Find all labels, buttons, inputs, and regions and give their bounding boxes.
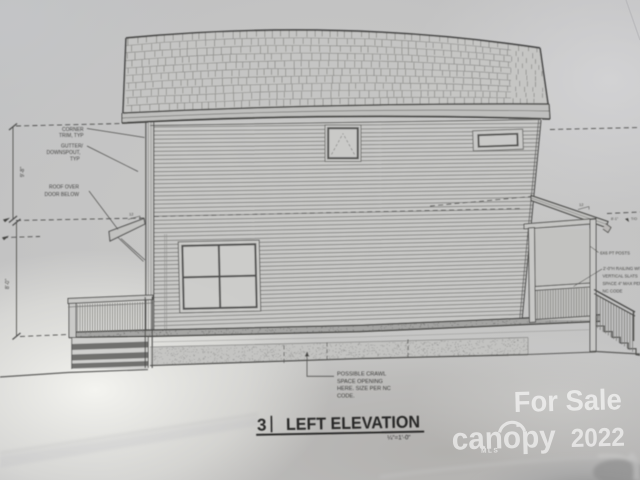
svg-text:¼"=1'-0": ¼"=1'-0" — [387, 434, 410, 441]
svg-text:8'-1": 8'-1" — [611, 217, 619, 221]
svg-text:MLS: MLS — [481, 447, 499, 454]
svg-text:TYP: TYP — [70, 156, 80, 162]
svg-text:3: 3 — [257, 415, 267, 434]
svg-text:2'-0"H RAILING WIT: 2'-0"H RAILING WIT — [603, 266, 640, 271]
svg-text:LEFT ELEVATION: LEFT ELEVATION — [286, 412, 420, 434]
svg-text:GUTTER/: GUTTER/ — [61, 143, 84, 149]
svg-text:8'-0": 8'-0" — [5, 279, 11, 289]
svg-text:6X6 PT POSTS: 6X6 PT POSTS — [600, 251, 630, 256]
svg-text:CODE.: CODE. — [337, 393, 355, 399]
svg-text:2022: 2022 — [570, 422, 625, 453]
svg-text:POSSIBLE CRAWL: POSSIBLE CRAWL — [337, 372, 386, 378]
svg-text:12: 12 — [129, 212, 134, 217]
svg-text:For Sale: For Sale — [513, 384, 622, 419]
svg-text:T/O: T/O — [631, 217, 637, 221]
svg-text:12: 12 — [579, 202, 584, 207]
svg-text:CORNER: CORNER — [62, 127, 84, 133]
svg-text:SPACE OPENING: SPACE OPENING — [337, 379, 383, 385]
svg-text:SPACE 4" MAX PER: SPACE 4" MAX PER — [603, 281, 640, 286]
svg-text:ROOF OVER: ROOF OVER — [49, 185, 79, 191]
svg-text:DOOR BELOW: DOOR BELOW — [45, 192, 80, 198]
svg-text:VERTICAL SLATS: VERTICAL SLATS — [603, 273, 638, 278]
svg-text:9'-8": 9'-8" — [20, 167, 26, 177]
svg-text:HERE. SIZE PER NC: HERE. SIZE PER NC — [337, 386, 391, 392]
svg-text:TRIM, TYP: TRIM, TYP — [59, 133, 84, 139]
svg-text:DOWNSPOUT,: DOWNSPOUT, — [47, 150, 81, 156]
svg-text:NC CODE: NC CODE — [603, 288, 623, 293]
